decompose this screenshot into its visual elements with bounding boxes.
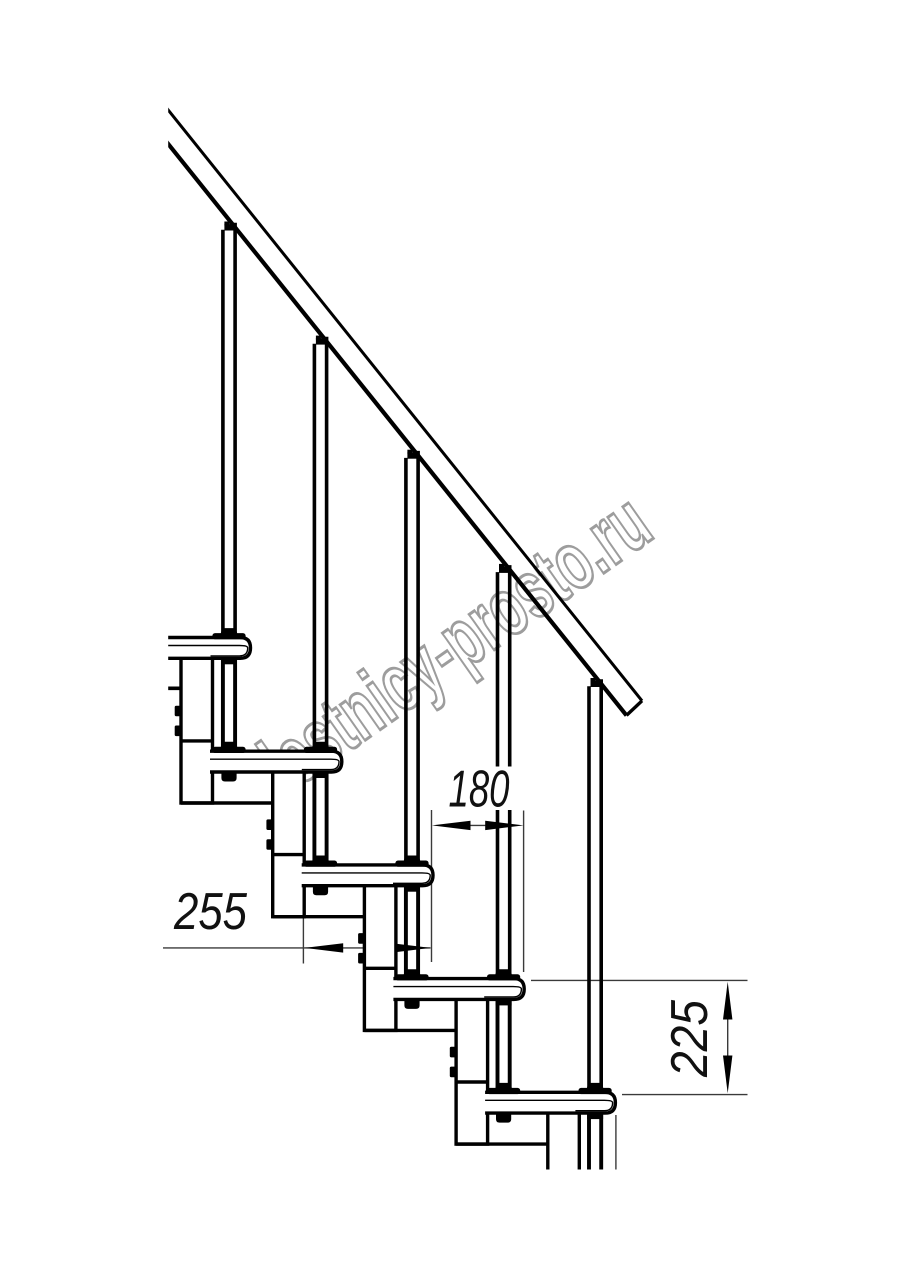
svg-text:180: 180 <box>449 761 510 819</box>
svg-text:225: 225 <box>661 999 719 1078</box>
svg-text:255: 255 <box>173 883 248 941</box>
